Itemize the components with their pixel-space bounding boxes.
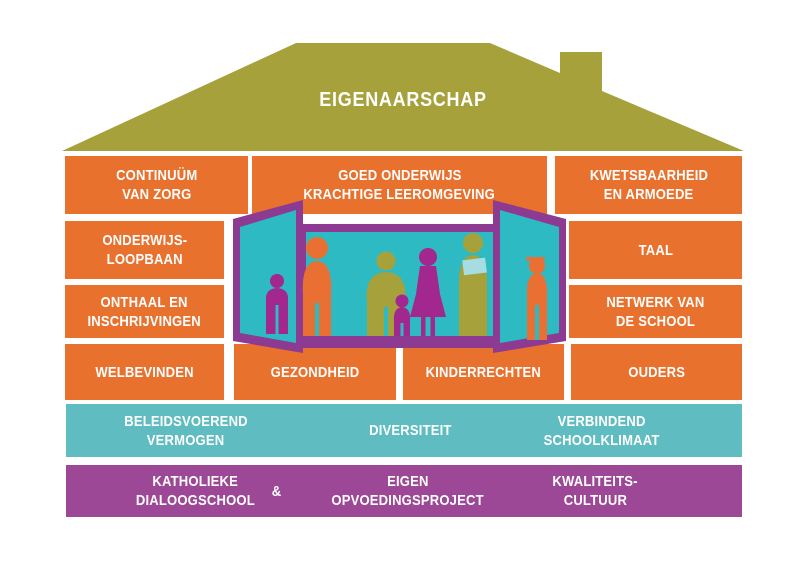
roof-title: EIGENAARSCHAP <box>253 88 553 112</box>
bar-label-eigen-opvoedingsproject: EIGEN OPVOEDINGSPROJECT <box>300 465 515 517</box>
block-label-line: KRACHTIGE LEEROMGEVING <box>304 185 496 204</box>
window-frame <box>299 224 500 348</box>
bar-label-line: DIALOOGSCHOOL <box>135 491 254 510</box>
block-gezondheid: GEZONDHEID <box>234 344 396 400</box>
bar-label-line: DIVERSITEIT <box>369 421 451 440</box>
teen-with-cap-silhouette <box>526 257 547 340</box>
block-taal: TAAL <box>569 221 742 279</box>
block-welbevinden: WELBEVINDEN <box>65 344 224 400</box>
tablet-icon <box>462 258 487 276</box>
block-label-line: INSCHRIJVINGEN <box>88 312 201 331</box>
block-kinderrechten: KINDERRECHTEN <box>403 344 564 400</box>
bar-label-diversiteit: DIVERSITEIT <box>310 404 510 457</box>
window-glass <box>306 232 493 336</box>
window-left-shutter-glass <box>240 210 296 343</box>
woman-with-tablet-silhouette <box>459 233 487 336</box>
block-label-line: EN ARMOEDE <box>604 185 694 204</box>
man-silhouette <box>303 237 331 336</box>
window-right-shutter-glass <box>500 210 559 343</box>
block-kwetsbaarheid-en-armoede: KWETSBAARHEID EN ARMOEDE <box>555 156 742 214</box>
block-label-line: CONTINUÜM <box>116 166 197 185</box>
window-left-shutter-frame <box>233 200 303 353</box>
heavyset-person-silhouette <box>367 252 406 337</box>
bar-label-line: BELEIDSVOEREND <box>124 412 248 431</box>
bar-label-beleidsvoerend-vermogen: BELEIDSVOEREND VERMOGEN <box>66 404 306 457</box>
block-label-line: KWETSBAARHEID <box>589 166 707 185</box>
bar-label-line: CULTUUR <box>563 491 626 510</box>
bar-label-line: & <box>272 482 282 501</box>
house-infographic: CONTINUÜM VAN ZORG GOED ONDERWIJS KRACHT… <box>0 0 800 566</box>
child-silhouette <box>266 274 288 334</box>
bar-label-line: OPVOEDINGSPROJECT <box>331 491 483 510</box>
block-label-line: VAN ZORG <box>122 185 191 204</box>
block-label-line: KINDERRECHTEN <box>426 363 541 382</box>
block-label-line: DE SCHOOL <box>616 312 695 331</box>
block-label-line: ONDERWIJS- <box>102 231 187 250</box>
block-label-line: WELBEVINDEN <box>95 363 193 382</box>
block-onthaal-en-inschrijvingen: ONTHAAL EN INSCHRIJVINGEN <box>65 285 224 338</box>
toddler-silhouette <box>394 295 410 337</box>
block-label-line: TAAL <box>638 241 673 260</box>
block-label-line: ONTHAAL EN <box>101 293 188 312</box>
cap-icon <box>526 257 545 261</box>
bar-label-line: KATHOLIEKE <box>152 472 238 491</box>
block-label-line: LOOPBAAN <box>106 250 182 269</box>
window-right-shutter-frame <box>493 200 566 353</box>
bar-label-ampersand: & <box>262 465 292 517</box>
block-continuum-van-zorg: CONTINUÜM VAN ZORG <box>65 156 248 214</box>
bar-label-line: EIGEN <box>387 472 428 491</box>
block-onderwijsloopbaan: ONDERWIJS- LOOPBAAN <box>65 221 224 279</box>
bar-label-line: VERBINDEND <box>558 412 646 431</box>
block-ouders: OUDERS <box>571 344 742 400</box>
roof-title-text: EIGENAARSCHAP <box>319 89 486 112</box>
block-netwerk-van-de-school: NETWERK VAN DE SCHOOL <box>569 285 742 338</box>
block-goed-onderwijs: GOED ONDERWIJS KRACHTIGE LEEROMGEVING <box>252 156 547 214</box>
bar-label-verbindend-schoolklimaat: VERBINDEND SCHOOLKLIMAAT <box>492 404 712 457</box>
block-label-line: GOED ONDERWIJS <box>338 166 461 185</box>
woman-silhouette <box>410 248 446 336</box>
bar-label-kwaliteitscultuur: KWALITEITS- CULTUUR <box>495 465 695 517</box>
bar-label-line: VERMOGEN <box>147 431 225 450</box>
block-label-line: OUDERS <box>628 363 685 382</box>
block-label-line: GEZONDHEID <box>271 363 360 382</box>
bar-label-line: SCHOOLKLIMAAT <box>544 431 660 450</box>
block-label-line: NETWERK VAN <box>606 293 704 312</box>
bar-label-line: KWALITEITS- <box>552 472 637 491</box>
